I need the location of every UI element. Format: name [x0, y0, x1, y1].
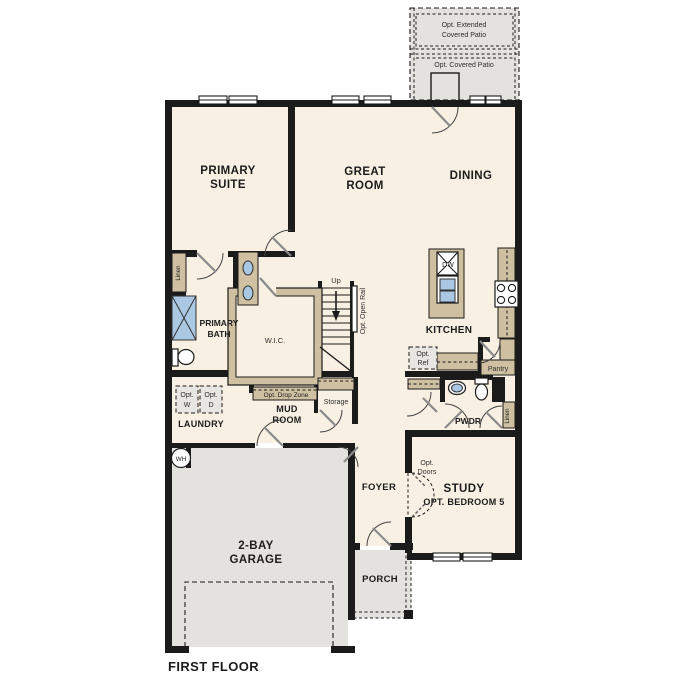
porch-label: PORCH	[362, 574, 398, 585]
wall-foyer-front-left	[348, 543, 360, 550]
window-dining-1	[470, 96, 485, 104]
open-rail-label: Opt. Open Rail	[360, 287, 367, 334]
mud-room-label-1: MUD	[276, 404, 298, 414]
pantry-label: Pantry	[488, 366, 509, 373]
vanity-sink-2	[243, 286, 253, 300]
sink-basin-2	[440, 291, 455, 302]
window-study-2	[463, 553, 492, 561]
wall-garage-top-left	[165, 443, 255, 448]
patio-extended-label-1: Opt. Extended	[442, 22, 487, 29]
opt-covered-patio-area: Opt. Extended Covered Patio Opt. Covered…	[410, 8, 519, 101]
plan-title: FIRST FLOOR	[168, 659, 259, 674]
wall-under-stairs	[318, 371, 354, 377]
pwdr-toilet-tank	[475, 378, 488, 384]
porch-post	[404, 610, 413, 619]
storage-label: Storage	[324, 399, 349, 406]
kitchen-label: KITCHEN	[426, 325, 473, 336]
opt-w-label-2: W	[184, 402, 191, 409]
window-primary-2	[229, 96, 257, 104]
water-heater-label: WH	[176, 456, 187, 463]
wall-garage-left	[165, 443, 172, 653]
toilet-tank	[172, 349, 178, 366]
floor-plan-page: Opt. Extended Covered Patio Opt. Covered…	[0, 0, 687, 687]
wall-pwdr-linen-mass	[492, 377, 505, 402]
patio-extended-label-2: Covered Patio	[442, 32, 486, 39]
wall-primary-suite-right	[288, 107, 295, 232]
wall-garage-top-right	[283, 443, 355, 448]
wall-right	[515, 100, 522, 560]
opt-d-label-1: Opt.	[204, 392, 217, 399]
wall-study-left-lower	[405, 517, 412, 553]
wall-study-top	[405, 430, 522, 437]
window-great-1	[332, 96, 359, 104]
drop-zone-label: Opt. Drop Zone	[264, 392, 309, 399]
opt-w-label-1: Opt.	[180, 392, 193, 399]
dishwasher-label: DW	[442, 262, 454, 269]
vanity-sink-1	[243, 261, 253, 275]
window-dining-2	[486, 96, 501, 104]
opt-ref-label-1: Opt.	[416, 351, 429, 358]
open-rail	[352, 286, 357, 332]
toilet-bowl	[178, 350, 194, 365]
linen-left-label: Linen	[175, 265, 182, 281]
patio-covered-label: Opt. Covered Patio	[434, 62, 494, 69]
wic-label: W.I.C.	[265, 336, 285, 345]
primary-suite-label-1: PRIMARY	[200, 165, 255, 177]
primary-suite-label-2: SUITE	[210, 179, 246, 191]
linen-right-label: Linen	[504, 408, 511, 424]
primary-bath-label-2: BATH	[208, 329, 231, 339]
foyer-label: FOYER	[362, 482, 396, 493]
primary-bath-label-1: PRIMARY	[200, 318, 239, 328]
wall-garage-bottom-left	[165, 646, 189, 653]
study-sub-label: OPT. BEDROOM 5	[423, 497, 504, 507]
opt-ref-label-2: Ref	[418, 360, 429, 367]
opt-d-label-2: D	[208, 402, 213, 409]
pwdr-toilet-bowl	[476, 384, 488, 400]
great-room-label-2: ROOM	[346, 180, 383, 192]
window-study-1	[433, 553, 460, 561]
opt-doors-label-2: Doors	[418, 469, 437, 476]
dining-label: DINING	[450, 170, 493, 182]
wall-garage-bottom-right	[331, 646, 355, 653]
mud-room-label-2: ROOM	[272, 415, 301, 425]
window-primary-1	[199, 96, 227, 104]
pwdr-sink-basin	[452, 384, 463, 392]
great-room-label-1: GREAT	[344, 166, 385, 178]
wall-left	[165, 100, 172, 448]
sink-basin-1	[440, 279, 455, 290]
wall-study-left-upper	[405, 437, 412, 473]
hall-counter	[408, 379, 440, 389]
stairs-up-label: Up	[331, 276, 341, 285]
garage-label-1: 2-BAY	[238, 540, 273, 552]
storage-bench	[318, 378, 354, 390]
floor-plan-drawing: Opt. Extended Covered Patio Opt. Covered…	[0, 0, 687, 687]
opt-doors-label-1: Opt.	[420, 460, 433, 467]
garage-label-2: GARAGE	[230, 554, 283, 566]
laundry-label: LAUNDRY	[178, 419, 224, 429]
window-great-2	[364, 96, 391, 104]
wall-garage-right	[348, 448, 355, 620]
study-label: STUDY	[444, 483, 485, 495]
wall-counter-corner	[481, 337, 490, 342]
wall-bath-bottom	[165, 370, 232, 377]
